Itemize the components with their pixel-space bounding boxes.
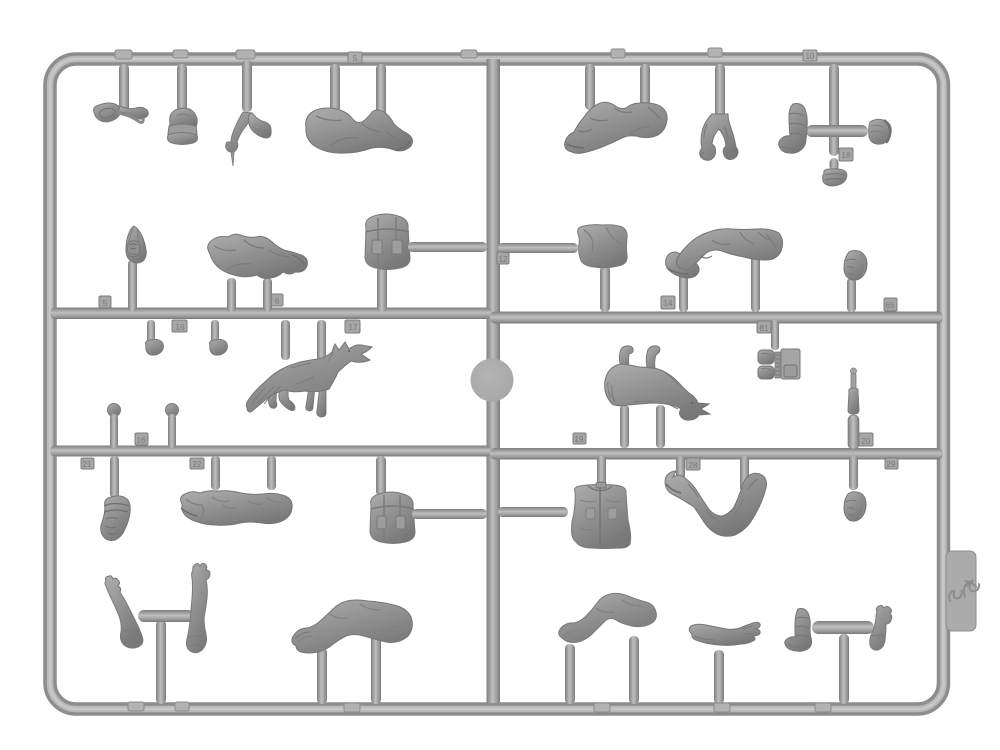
svg-text:10: 10 — [806, 52, 815, 61]
svg-text:81: 81 — [760, 324, 769, 333]
svg-text:16: 16 — [176, 323, 185, 332]
svg-text:17: 17 — [349, 323, 358, 332]
svg-text:12: 12 — [499, 255, 508, 264]
svg-text:29: 29 — [887, 460, 896, 469]
svg-text:16: 16 — [137, 436, 146, 445]
svg-text:19: 19 — [575, 435, 584, 444]
svg-text:18: 18 — [842, 151, 851, 160]
svg-text:14: 14 — [664, 299, 673, 308]
svg-text:28: 28 — [689, 461, 698, 470]
svg-text:20: 20 — [862, 437, 871, 446]
svg-text:22: 22 — [193, 460, 202, 469]
svg-text:5: 5 — [353, 54, 358, 63]
svg-text:6: 6 — [275, 297, 280, 306]
svg-text:5: 5 — [103, 299, 108, 308]
svg-text:21: 21 — [83, 460, 92, 469]
svg-text:65: 65 — [886, 301, 895, 310]
